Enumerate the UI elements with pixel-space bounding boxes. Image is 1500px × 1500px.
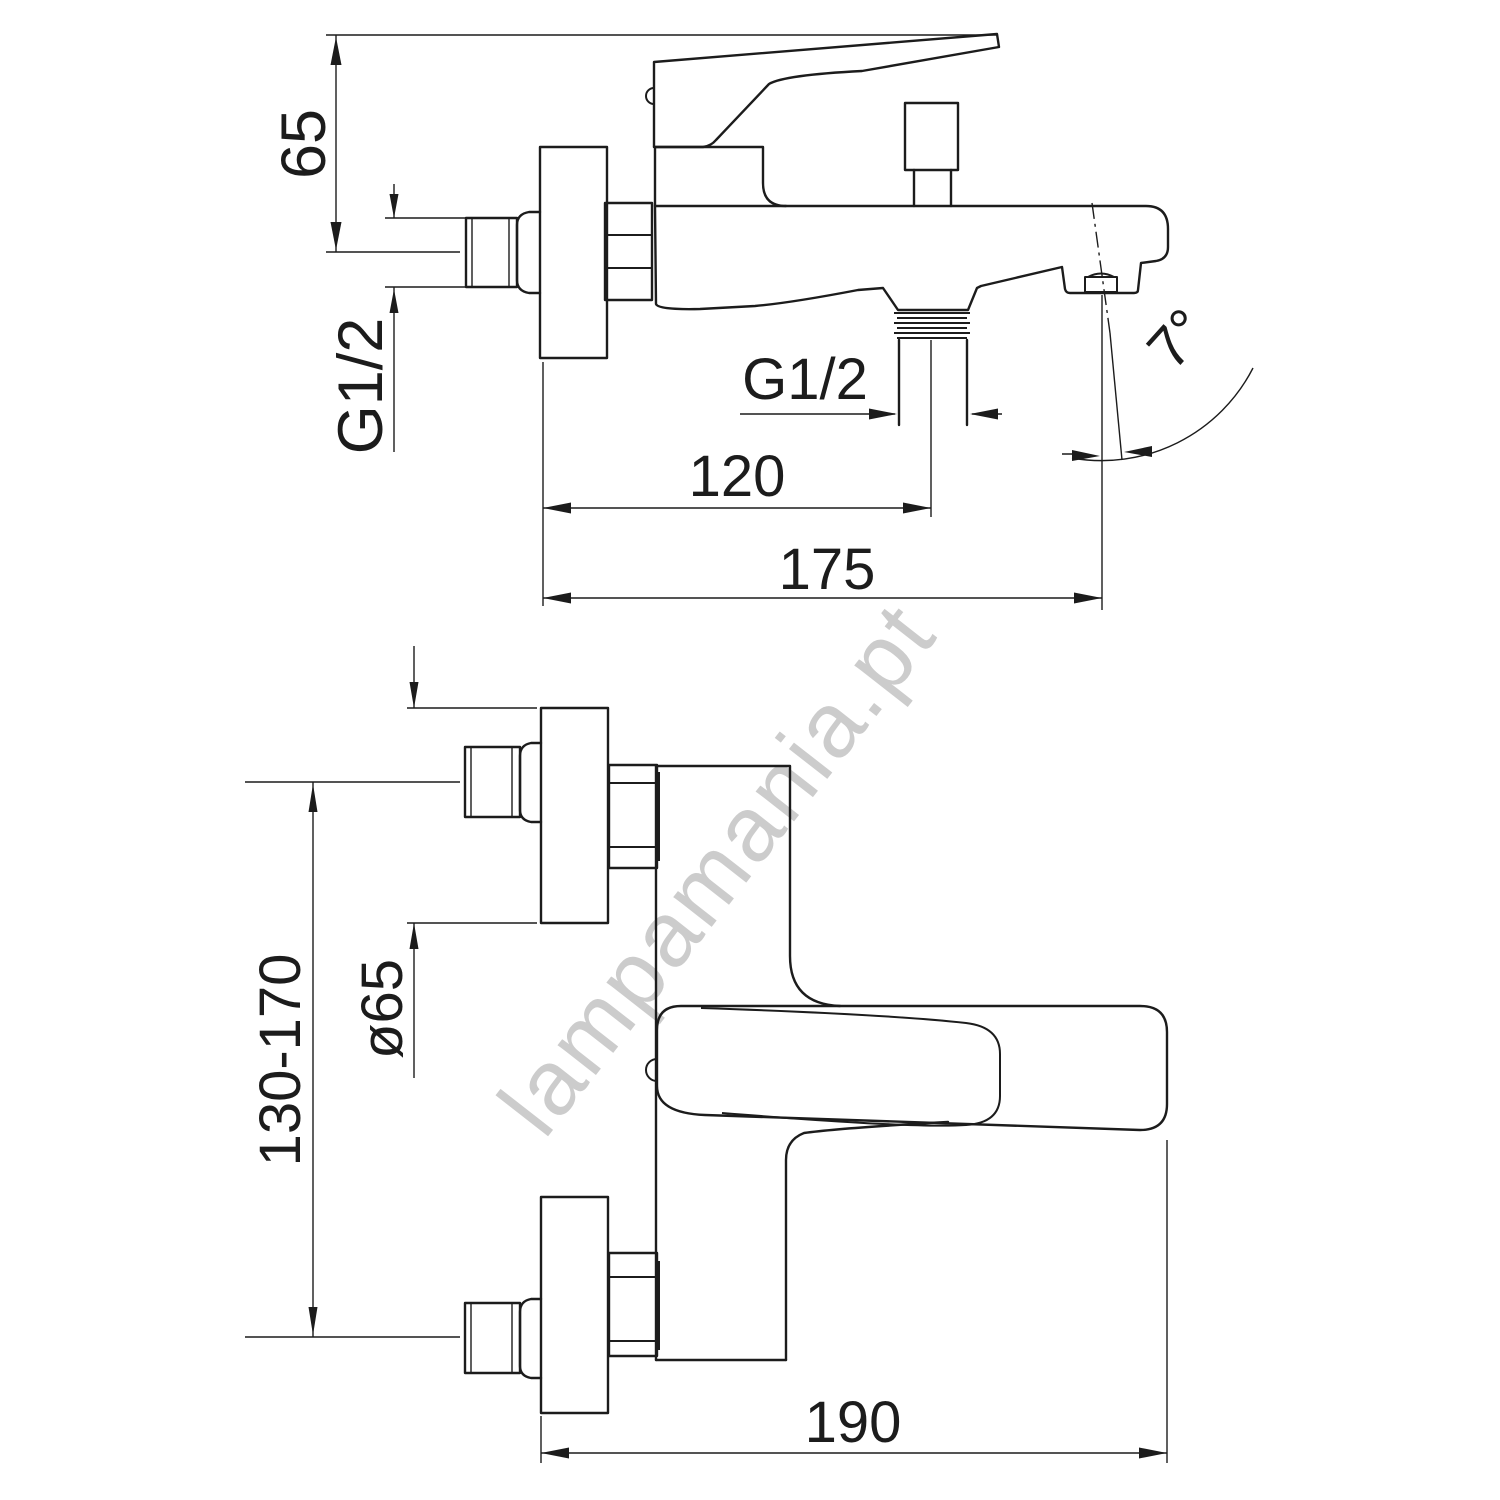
technical-drawing-page: lampamania.pt 65 G1/2	[0, 0, 1500, 1500]
dim-outlet-offset: 120	[689, 444, 786, 509]
dim-escutcheon-diameter: ø65	[350, 959, 415, 1059]
dim-handle-height: 65	[269, 109, 339, 179]
dim-outlet-thread: G1/2	[742, 347, 868, 412]
dim-spout-reach: 175	[779, 537, 876, 602]
dim-overall-width: 190	[805, 1390, 902, 1455]
dim-inlet-thread: G1/2	[326, 318, 396, 455]
faucet-technical-drawing: lampamania.pt 65 G1/2	[0, 0, 1500, 1500]
dim-inlet-spacing: 130-170	[248, 954, 313, 1167]
